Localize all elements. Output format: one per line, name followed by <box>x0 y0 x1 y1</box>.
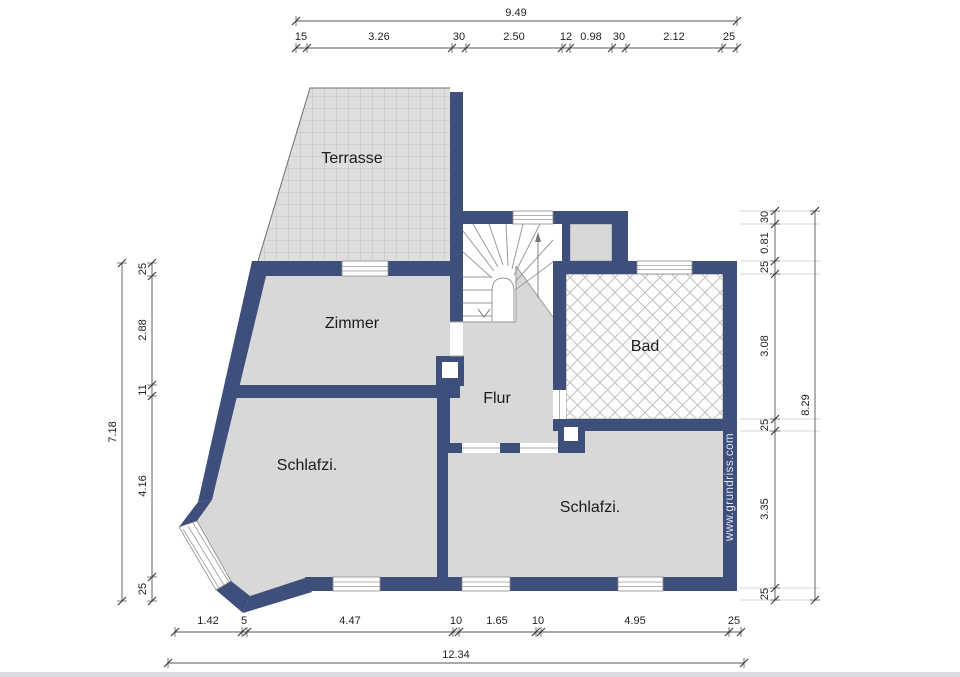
dim-bottom-5: 10 <box>532 615 544 627</box>
wall-zimmer-top-right <box>388 261 460 276</box>
dim-bottom-0: 1.42 <box>197 615 218 627</box>
door-zimmer-flur <box>450 322 463 356</box>
zimmer-floor <box>238 276 450 391</box>
schlafzimmer-left-label: Schlafzi. <box>277 457 337 474</box>
wall-zimmer-top-left <box>252 261 342 276</box>
dim-left-2: 11 <box>137 384 149 395</box>
schlafzimmer-right-label: Schlafzi. <box>560 499 620 516</box>
door-flur-schlafzimmer-1 <box>462 443 500 453</box>
dim-top-total: 9.49 <box>505 7 526 19</box>
dim-top-1: 3.26 <box>368 31 389 43</box>
dim-top-2: 30 <box>453 31 465 43</box>
window-zimmer-top <box>342 261 388 276</box>
wall-bad-top-left <box>553 261 637 274</box>
dim-top-0: 15 <box>295 31 307 43</box>
wall-flur-bottom-left <box>437 443 462 453</box>
dim-top-6: 30 <box>613 31 625 43</box>
image-edge-strip <box>0 672 960 677</box>
bad-label: Bad <box>631 338 659 355</box>
floor-plan-page: Terrasse Zimmer Bad Flur Schlafzi. Schla… <box>0 0 960 677</box>
zimmer-label: Zimmer <box>325 315 380 332</box>
dim-bottom-6: 4.95 <box>624 615 645 627</box>
floor-plan-drawing: Terrasse Zimmer Bad Flur Schlafzi. Schla… <box>0 0 960 677</box>
dim-top-5: 0.98 <box>580 31 601 43</box>
wall-shaft-left <box>562 224 570 261</box>
dim-right-0: 30 <box>759 211 771 223</box>
terrasse-floor <box>258 88 450 261</box>
dim-right-4: 25 <box>759 419 771 431</box>
dim-bottom-4: 1.65 <box>486 615 507 627</box>
wall-zimmer-right <box>450 276 463 322</box>
window-bottom-right <box>618 577 663 591</box>
dim-right-5: 3.35 <box>759 498 771 519</box>
dim-left-1: 2.88 <box>137 319 149 340</box>
dimension-bottom: 1.42 5 4.47 10 1.65 10 4.95 25 12.34 <box>164 615 748 668</box>
door-flur-bad <box>553 390 566 419</box>
dim-top-3: 2.50 <box>503 31 524 43</box>
window-bottom-left <box>333 577 380 591</box>
wall-zimmer-schlafzimmer-divider <box>232 385 460 398</box>
dimension-right: 30 0.81 25 3.08 25 3.35 25 8.29 <box>740 207 820 604</box>
dim-bottom-7: 25 <box>728 615 740 627</box>
dim-bottom-1: 5 <box>241 615 247 627</box>
door-flur-schlafzimmer-2 <box>520 443 558 453</box>
dim-right-total: 8.29 <box>800 394 812 415</box>
wall-top-stair-left <box>450 211 513 224</box>
dim-right-1: 0.81 <box>759 232 771 253</box>
dim-top-4: 12 <box>560 31 572 43</box>
dim-right-6: 25 <box>759 588 771 600</box>
window-bad-top <box>637 261 692 274</box>
dim-bottom-2: 4.47 <box>339 615 360 627</box>
wall-schlafzimmer-divider <box>437 443 448 584</box>
dim-left-4: 25 <box>137 583 149 595</box>
dimension-top: 9.49 15 3.26 30 2.50 12 0.98 30 2.12 25 <box>292 7 741 53</box>
wall-flur-bottom-mid <box>500 443 520 453</box>
terrasse-label: Terrasse <box>321 150 382 167</box>
wall-flur-left <box>437 386 450 443</box>
watermark-text: www.grundriss.com <box>724 433 736 542</box>
wall-bad-bottom <box>553 419 737 431</box>
dim-right-3: 3.08 <box>759 335 771 356</box>
flur-label: Flur <box>483 390 511 407</box>
wall-terrace-right <box>450 92 463 276</box>
dim-top-7: 2.12 <box>663 31 684 43</box>
wall-bad-left <box>553 273 566 390</box>
dim-right-2: 25 <box>759 261 771 273</box>
window-bottom-mid <box>462 577 510 591</box>
flur-pier-duct <box>442 362 458 378</box>
dimension-left: 7.18 25 2.88 11 4.16 25 <box>107 259 157 605</box>
dim-top-8: 25 <box>723 31 735 43</box>
dim-left-total: 7.18 <box>107 421 119 442</box>
stair-flight-area <box>463 224 516 322</box>
terrasse-room <box>258 88 450 261</box>
schlafzimmer-left-floor <box>197 391 437 600</box>
dim-left-3: 4.16 <box>137 475 149 496</box>
shaft-floor <box>570 224 612 261</box>
dim-left-0: 25 <box>137 263 149 275</box>
window-stair-top <box>513 211 553 224</box>
dim-bottom-3: 10 <box>450 615 462 627</box>
bad-pier-duct <box>564 427 578 441</box>
dim-bottom-total: 12.34 <box>442 649 470 661</box>
